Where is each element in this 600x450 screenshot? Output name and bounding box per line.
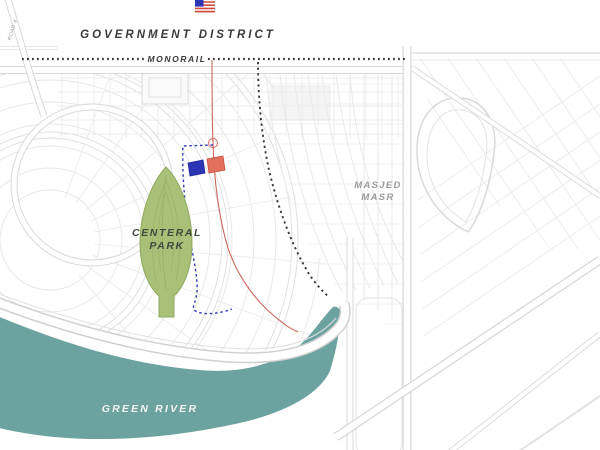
map-artwork — [0, 0, 600, 450]
central-park-label-line2: PARK — [149, 240, 184, 252]
city-map-canvas: GOVERNMENT DISTRICT MONORAIL ROAD 4 CENT… — [0, 0, 600, 450]
green-river-label: GREEN RIVER — [102, 403, 199, 415]
masjed-masr-label: MASJED MASR — [354, 180, 401, 204]
masjed-masr-label-line1: MASJED — [354, 180, 401, 191]
rounded-block-outline — [356, 298, 402, 450]
flag-icon — [195, 0, 215, 13]
plot-marker-blue — [188, 160, 205, 176]
masjed-masr-label-line2: MASR — [361, 192, 394, 203]
government-district-label: GOVERNMENT DISTRICT — [80, 29, 276, 41]
central-park-label-line1: CENTERAL — [132, 227, 202, 239]
flag-canton — [195, 0, 204, 7]
dense-block-cluster — [272, 86, 330, 120]
central-park-label: CENTERAL PARK — [132, 227, 202, 253]
street-network-right — [412, 58, 600, 344]
plot-marker-red — [207, 156, 225, 173]
monorail-label: MONORAIL — [147, 54, 206, 64]
